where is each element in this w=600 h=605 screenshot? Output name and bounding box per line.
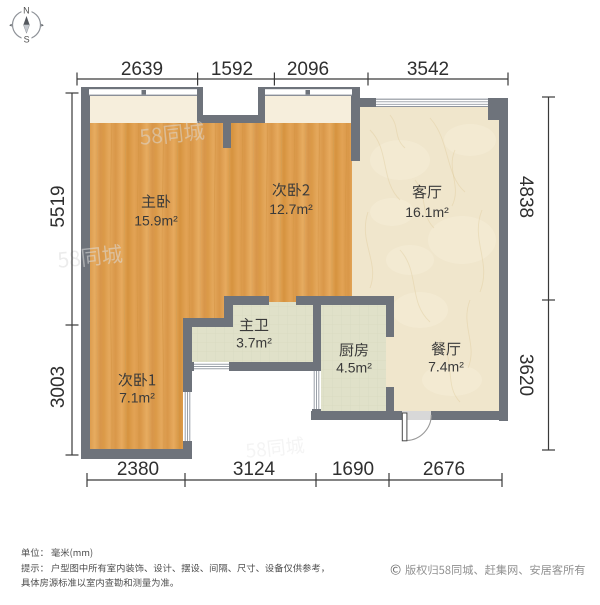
svg-text:2676: 2676 bbox=[423, 459, 465, 480]
svg-text:16.1m²: 16.1m² bbox=[405, 204, 449, 220]
svg-text:5519: 5519 bbox=[48, 185, 69, 227]
svg-text:4838: 4838 bbox=[515, 176, 536, 218]
svg-text:4.5m²: 4.5m² bbox=[336, 360, 372, 376]
svg-text:3003: 3003 bbox=[48, 366, 69, 408]
svg-text:2096: 2096 bbox=[287, 59, 329, 80]
svg-text:3620: 3620 bbox=[515, 354, 536, 396]
svg-text:3.7m²: 3.7m² bbox=[236, 335, 272, 351]
svg-text:1592: 1592 bbox=[211, 59, 253, 80]
svg-text:2639: 2639 bbox=[121, 59, 163, 80]
svg-text:7.1m²: 7.1m² bbox=[119, 390, 155, 406]
svg-text:N: N bbox=[23, 5, 30, 15]
svg-text:12.7m²: 12.7m² bbox=[269, 201, 313, 217]
svg-text:3124: 3124 bbox=[233, 459, 276, 480]
svg-text:15.9m²: 15.9m² bbox=[134, 213, 178, 229]
svg-text:3542: 3542 bbox=[407, 59, 449, 80]
svg-text:1690: 1690 bbox=[332, 459, 374, 480]
svg-text:S: S bbox=[24, 34, 30, 44]
svg-text:2380: 2380 bbox=[117, 459, 159, 480]
svg-text:7.4m²: 7.4m² bbox=[428, 359, 464, 375]
